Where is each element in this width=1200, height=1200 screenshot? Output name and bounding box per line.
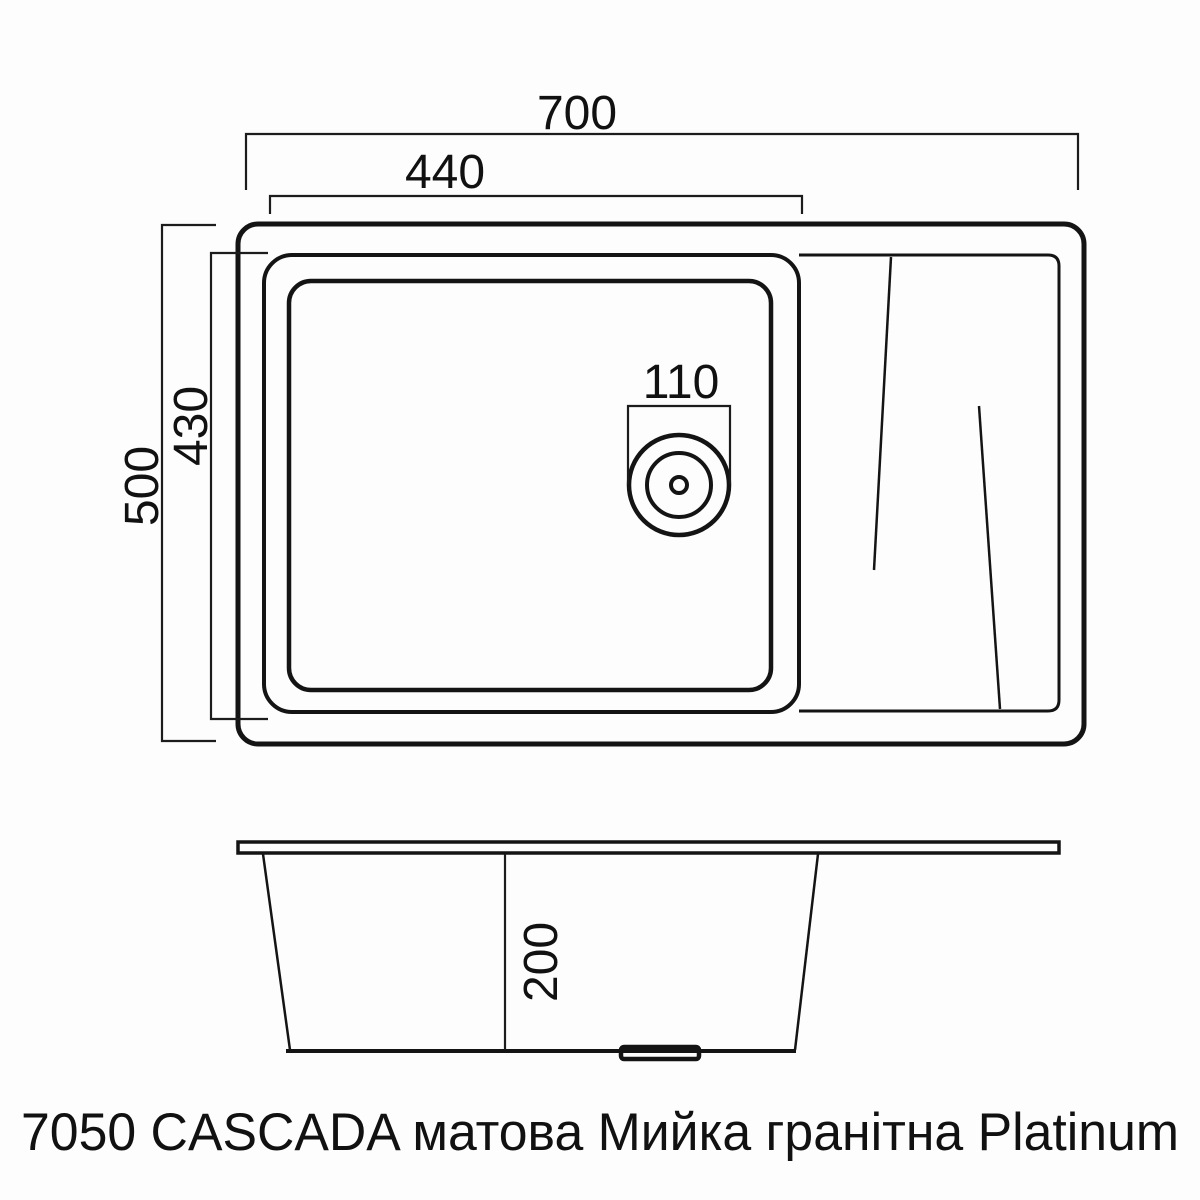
dimension-label-440: 440: [405, 146, 485, 199]
bowl-outer-edge-outline: [264, 255, 799, 712]
product-caption: 7050 CASCADA матова Мийка гранітна Plati…: [21, 1103, 1179, 1162]
dimension-label-200: 200: [515, 922, 568, 1002]
drain-center-circle: [671, 477, 687, 493]
dimension-label-700: 700: [537, 87, 617, 140]
drawing-canvas: 110 700 440 500 430: [0, 0, 1200, 1200]
drainboard-groove-right: [979, 406, 1000, 709]
drainboard-groove-left: [874, 257, 891, 570]
side-bowl-right-wall: [795, 854, 818, 1050]
drain-outer-circle: [629, 435, 729, 535]
dimension-bowl-depth-430: 430: [165, 253, 268, 719]
dimension-bowl-height-200: 200: [505, 854, 568, 1050]
dimension-label-500: 500: [116, 446, 169, 526]
drain-middle-circle: [647, 453, 711, 517]
bowl-bottom-outline: [289, 281, 771, 690]
dimension-line-500: [162, 225, 216, 741]
dimension-line-700: [246, 134, 1078, 190]
dimension-drain-110: 110: [628, 356, 730, 484]
dimension-line-440: [270, 196, 802, 214]
dimension-bracket-110: [628, 406, 730, 484]
dimension-overall-width-700: 700: [246, 87, 1078, 190]
side-view: 200: [238, 842, 1059, 1059]
dimension-bowl-width-440: 440: [270, 146, 802, 214]
sink-dimension-drawing: 110 700 440 500 430: [0, 0, 1200, 1200]
side-bowl-left-wall: [263, 854, 290, 1050]
dimension-overall-depth-500: 500: [116, 225, 216, 741]
dimension-label-430: 430: [165, 386, 218, 466]
sink-outer-rim-outline: [238, 224, 1084, 744]
side-rim-bar: [238, 842, 1059, 853]
top-view: 110 700 440 500 430: [116, 87, 1084, 744]
drainboard-outline: [799, 255, 1059, 711]
dimension-label-110: 110: [643, 356, 720, 409]
drain-hole: [629, 435, 729, 535]
